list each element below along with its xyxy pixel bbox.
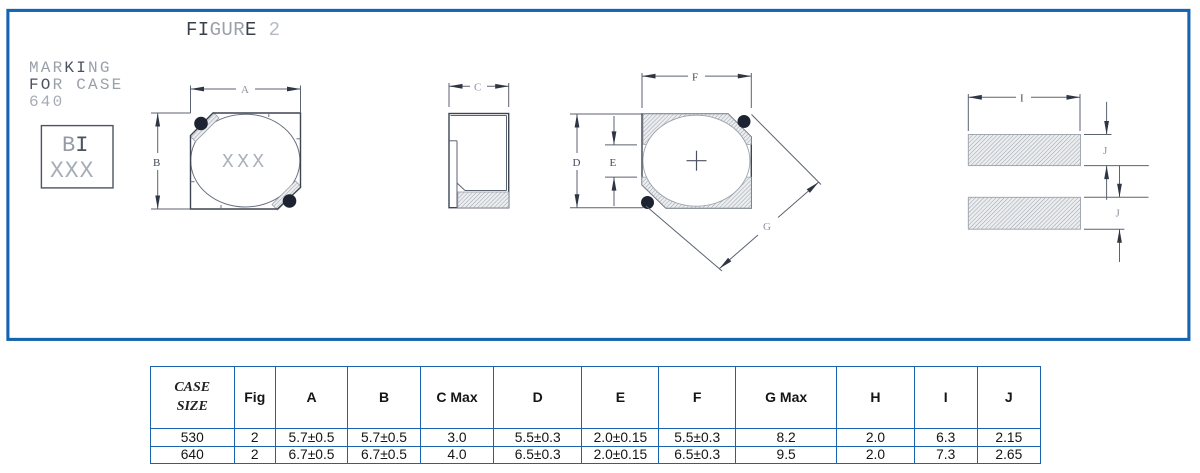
svg-text:J: J [1116, 208, 1121, 220]
svg-text:E: E [610, 157, 617, 169]
svg-text:XXX: XXX [222, 151, 268, 173]
svg-text:XXX: XXX [50, 158, 94, 184]
svg-text:FOR CASE: FOR CASE [29, 76, 123, 94]
svg-text:C: C [474, 82, 481, 94]
svg-text:D: D [573, 157, 581, 169]
svg-text:G: G [763, 221, 771, 233]
svg-text:640: 640 [29, 93, 64, 111]
svg-text:F: F [692, 72, 698, 84]
svg-text:A: A [241, 84, 249, 96]
svg-text:BI: BI [62, 133, 88, 158]
svg-text:B: B [153, 157, 160, 169]
svg-text:MARKING: MARKING [29, 59, 112, 77]
svg-text:I: I [1020, 93, 1024, 105]
svg-text:FIGURE 2: FIGURE 2 [186, 19, 280, 41]
svg-text:J: J [1103, 145, 1108, 157]
